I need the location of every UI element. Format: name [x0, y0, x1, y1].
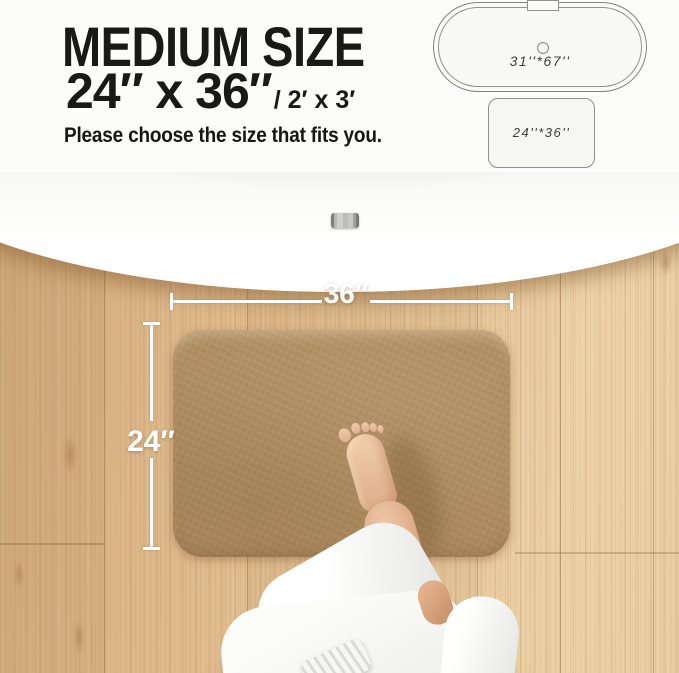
height-dimension-line — [150, 458, 153, 550]
bathtub-size-label: 31''*67'' — [434, 53, 646, 69]
wood-knot — [14, 560, 24, 588]
wood-knot — [660, 250, 672, 276]
toe — [377, 424, 385, 433]
floor-plank-joint — [0, 543, 104, 545]
wood-knot — [73, 620, 85, 654]
height-dimension-cap-top — [143, 322, 160, 325]
width-dimension-line — [171, 300, 322, 303]
width-dimension-label: 36″ — [314, 278, 378, 310]
bathtub-size-diagram: 31''*67'' — [433, 2, 647, 92]
width-dimension-cap-left — [170, 293, 173, 310]
toe — [350, 422, 362, 435]
bathtub-faucet-notch — [527, 0, 559, 11]
bathroom-photo: 36″ 24″ — [0, 172, 679, 673]
size-line: 24″ x 36″/ 2′ x 3′ — [66, 62, 355, 120]
size-banner: MEDIUM SIZE 24″ x 36″/ 2′ x 3′ Please ch… — [0, 0, 679, 172]
width-dimension-cap-right — [510, 293, 513, 310]
width-dimension-line — [370, 300, 512, 303]
mat-size-diagram: 24''*36'' — [488, 98, 595, 168]
height-dimension-line — [150, 324, 153, 421]
size-primary-text: 24″ x 36″ — [66, 63, 272, 119]
product-size-image: MEDIUM SIZE 24″ x 36″/ 2′ x 3′ Please ch… — [0, 0, 679, 673]
tub-overflow-fixture — [331, 213, 359, 228]
size-secondary-text: / 2′ x 3′ — [274, 86, 355, 114]
bathtub-bowl — [30, 172, 650, 190]
banner-subtitle: Please choose the size that fits you. — [64, 124, 382, 149]
wood-knot — [63, 435, 77, 475]
floor-plank-joint — [515, 552, 679, 554]
mat-size-label: 24''*36'' — [489, 125, 594, 140]
height-dimension-label: 24″ — [118, 425, 184, 459]
height-dimension-cap-bottom — [143, 547, 160, 550]
